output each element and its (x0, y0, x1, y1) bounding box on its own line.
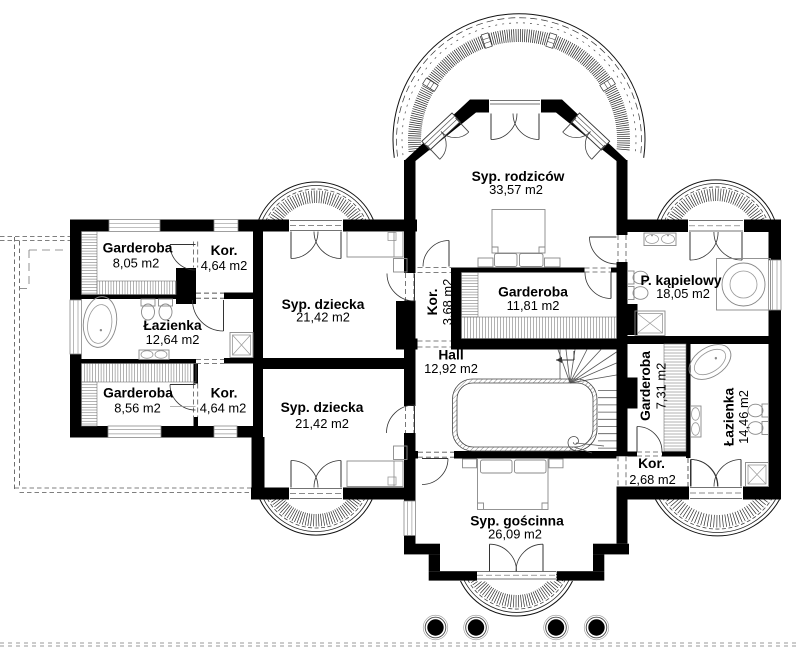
svg-text:Kor.: Kor. (425, 289, 440, 316)
svg-text:7,31 m2: 7,31 m2 (654, 363, 669, 410)
svg-text:Łazienka: Łazienka (143, 318, 202, 333)
svg-text:18,05 m2: 18,05 m2 (656, 286, 710, 301)
svg-text:33,57 m2: 33,57 m2 (489, 182, 543, 197)
svg-text:21,42 m2: 21,42 m2 (295, 416, 349, 431)
svg-text:Kor.: Kor. (211, 386, 238, 401)
svg-text:Kor.: Kor. (638, 456, 665, 471)
svg-text:8,56 m2: 8,56 m2 (114, 401, 161, 416)
svg-text:26,09 m2: 26,09 m2 (488, 527, 542, 542)
svg-text:11,81 m2: 11,81 m2 (507, 298, 560, 313)
svg-text:21,42 m2: 21,42 m2 (296, 310, 350, 325)
svg-text:3,68 m2: 3,68 m2 (440, 279, 455, 326)
svg-text:8,05 m2: 8,05 m2 (113, 256, 160, 271)
svg-text:12,64 m2: 12,64 m2 (146, 332, 200, 347)
svg-text:4,64 m2: 4,64 m2 (200, 401, 247, 416)
svg-text:Łazienka: Łazienka (722, 388, 737, 447)
svg-text:Syp. dziecka: Syp. dziecka (281, 400, 364, 415)
svg-text:12,92 m2: 12,92 m2 (424, 361, 478, 376)
svg-text:Garderoba: Garderoba (103, 241, 173, 256)
svg-text:14,46 m2: 14,46 m2 (736, 390, 751, 444)
svg-text:Kor.: Kor. (211, 243, 238, 258)
svg-text:Garderoba: Garderoba (638, 351, 653, 421)
svg-text:2,68 m2: 2,68 m2 (629, 472, 676, 487)
svg-text:Garderoba: Garderoba (103, 386, 173, 401)
svg-text:4,64 m2: 4,64 m2 (201, 258, 248, 273)
